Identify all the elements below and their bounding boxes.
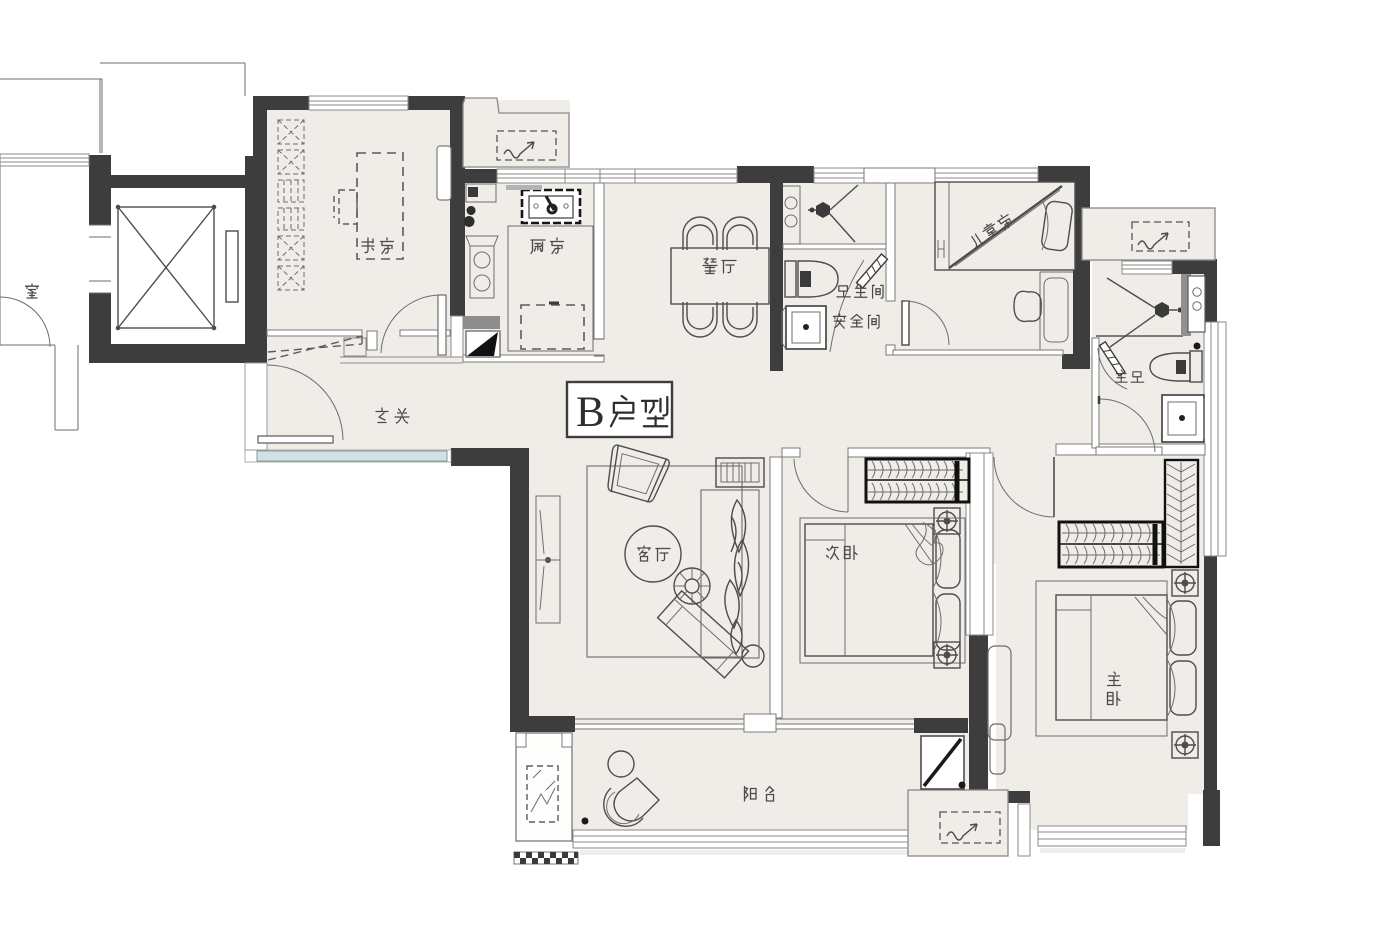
svg-text:B: B xyxy=(576,389,605,436)
